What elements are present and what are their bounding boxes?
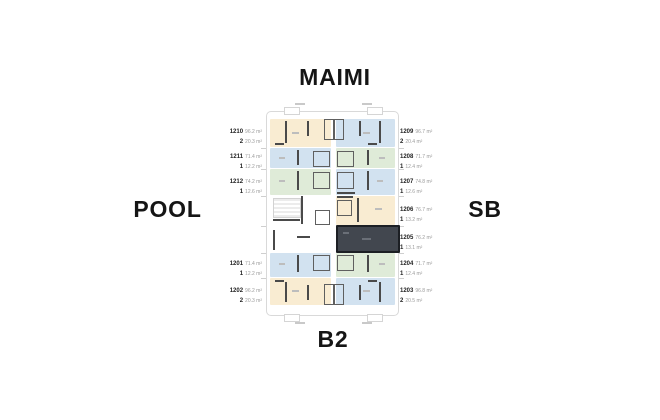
unit-terrace: 20.4 m²	[405, 139, 422, 145]
unit-terrace: 20.3 m²	[245, 298, 262, 304]
room-area-microtext	[379, 263, 385, 265]
unit-terrace: 13.2 m²	[405, 217, 422, 223]
unit-number: 1206	[400, 207, 413, 213]
unit-number: 1204	[400, 261, 413, 267]
wall-segment	[301, 196, 303, 224]
unit-label-1207[interactable]: 120774.8 m² 112.6 m²	[400, 176, 468, 195]
wall-segment	[359, 121, 361, 136]
room-area-microtext	[292, 132, 299, 134]
room-outline	[333, 284, 344, 305]
balcony-tab	[284, 314, 300, 322]
unit-number: 1207	[400, 179, 413, 185]
unit-terrace: 20.5 m²	[405, 298, 422, 304]
unit-area: 76.7 m²	[415, 207, 432, 213]
unit-terrace: 12.6 m²	[405, 189, 422, 195]
unit-number: 1212	[230, 179, 243, 185]
dimension-text-mark	[295, 103, 305, 105]
dimension-tick	[261, 148, 266, 149]
wall-segment	[337, 196, 353, 198]
room-outline	[313, 255, 330, 271]
dimension-text-mark	[295, 322, 305, 324]
unit-label-1206[interactable]: 120676.7 m² 113.2 m²	[400, 204, 468, 223]
label-pool: POOL	[110, 196, 225, 223]
dimension-tick	[261, 196, 266, 197]
unit-number: 1205	[400, 235, 413, 241]
dimension-tick	[261, 226, 266, 227]
wall-segment	[275, 143, 284, 145]
wall-segment	[379, 121, 381, 143]
wall-segment	[367, 171, 369, 190]
unit-terrace: 12.4 m²	[405, 271, 422, 277]
room-area-microtext	[279, 180, 285, 182]
unit-area: 71.4 m²	[245, 154, 262, 160]
wall-segment	[297, 171, 299, 190]
unit-beds: 2	[400, 298, 403, 304]
unit-label-1212[interactable]: 121274.2 m² 112.6 m²	[194, 176, 262, 195]
unit-beds: 1	[400, 164, 403, 170]
unit-number: 1201	[230, 261, 243, 267]
unit-label-1205[interactable]: 120576.2 m² 113.1 m²	[400, 232, 468, 251]
unit-number: 1208	[400, 154, 413, 160]
unit-label-1209[interactable]: 120996.7 m² 220.4 m²	[400, 126, 468, 145]
wall-segment	[367, 255, 369, 272]
unit-beds: 1	[400, 189, 403, 195]
unit-area: 71.7 m²	[415, 154, 432, 160]
floor-plan	[266, 111, 399, 316]
wall-segment	[379, 282, 381, 302]
room-outline	[337, 255, 354, 271]
room-area-microtext	[279, 157, 285, 159]
room-outline	[315, 210, 330, 225]
wall-segment	[297, 255, 299, 272]
dimension-text-mark	[362, 103, 372, 105]
wall-segment	[367, 150, 369, 165]
dimension-tick	[399, 196, 404, 197]
room-outline	[337, 200, 352, 216]
unit-label-1208[interactable]: 120871.7 m² 112.4 m²	[400, 151, 468, 170]
unit-beds: 1	[400, 217, 403, 223]
unit-area: 96.2 m²	[245, 129, 262, 135]
dimension-tick	[399, 148, 404, 149]
room-area-microtext	[343, 232, 349, 234]
unit-label-1201[interactable]: 120171.4 m² 112.2 m²	[194, 258, 262, 277]
room-outline	[313, 172, 330, 189]
unit-number: 1209	[400, 129, 413, 135]
unit-number: 1211	[230, 154, 243, 160]
room-area-microtext	[363, 132, 370, 134]
label-maimi: MAIMI	[270, 64, 400, 91]
wall-segment	[307, 285, 309, 300]
dimension-tick	[399, 278, 404, 279]
unit-number: 1203	[400, 288, 413, 294]
unit-1202[interactable]	[270, 278, 331, 305]
room-area-microtext	[363, 290, 370, 292]
room-area-microtext	[379, 157, 385, 159]
room-area-microtext	[377, 180, 383, 182]
wall-segment	[273, 219, 300, 221]
dimension-tick	[261, 278, 266, 279]
unit-label-1203[interactable]: 120396.8 m² 220.5 m²	[400, 285, 468, 304]
wall-segment	[273, 230, 275, 250]
room-area-microtext	[292, 290, 299, 292]
unit-terrace: 12.4 m²	[405, 164, 422, 170]
balcony-tab	[284, 107, 300, 115]
unit-area: 71.4 m²	[245, 261, 262, 267]
dimension-text-mark	[362, 322, 372, 324]
unit-area: 74.8 m²	[415, 179, 432, 185]
wall-segment	[285, 121, 287, 143]
unit-area: 96.7 m²	[415, 129, 432, 135]
unit-beds: 1	[400, 271, 403, 277]
unit-terrace: 20.3 m²	[245, 139, 262, 145]
room-area-microtext	[362, 238, 371, 240]
unit-area: 76.2 m²	[415, 235, 432, 241]
room-outline	[313, 151, 330, 167]
unit-beds: 1	[240, 271, 243, 277]
dimension-tick	[399, 253, 404, 254]
wall-segment	[285, 282, 287, 302]
dimension-tick	[261, 253, 266, 254]
room-area-microtext	[375, 208, 382, 210]
wall-segment	[357, 198, 359, 222]
balcony-tab	[367, 314, 383, 322]
wall-segment	[359, 285, 361, 300]
unit-terrace: 12.2 m²	[245, 164, 262, 170]
unit-number: 1210	[230, 129, 243, 135]
unit-label-1204[interactable]: 120471.7 m² 112.4 m²	[400, 258, 468, 277]
balcony-tab	[367, 107, 383, 115]
wall-segment	[307, 121, 309, 136]
unit-number: 1202	[230, 288, 243, 294]
wall-segment	[297, 236, 310, 238]
unit-area: 96.2 m²	[245, 288, 262, 294]
unit-beds: 2	[400, 139, 403, 145]
wall-segment	[337, 192, 355, 194]
unit-area: 96.8 m²	[415, 288, 432, 294]
wall-segment	[275, 280, 284, 282]
wall-segment	[297, 150, 299, 165]
unit-beds: 2	[240, 139, 243, 145]
floor-plan-page: MAIMI POOL SB B2 121096.2 m² 220.3 m² 12…	[0, 0, 660, 420]
stairs-hatch	[273, 198, 301, 218]
unit-terrace: 13.1 m²	[405, 245, 422, 251]
unit-area: 74.2 m²	[245, 179, 262, 185]
unit-beds: 2	[240, 298, 243, 304]
unit-label-1211[interactable]: 121171.4 m² 112.2 m²	[194, 151, 262, 170]
room-outline	[333, 119, 344, 140]
room-outline	[337, 172, 354, 189]
label-b2: B2	[303, 326, 363, 353]
unit-label-1202[interactable]: 120296.2 m² 220.3 m²	[194, 285, 262, 304]
unit-beds: 1	[400, 245, 403, 251]
unit-terrace: 12.6 m²	[245, 189, 262, 195]
room-outline	[337, 151, 354, 167]
wall-segment	[368, 280, 377, 282]
wall-segment	[368, 143, 377, 145]
unit-area: 71.7 m²	[415, 261, 432, 267]
unit-beds: 1	[240, 164, 243, 170]
room-area-microtext	[279, 263, 285, 265]
unit-beds: 1	[240, 189, 243, 195]
unit-terrace: 12.2 m²	[245, 271, 262, 277]
unit-label-1210[interactable]: 121096.2 m² 220.3 m²	[194, 126, 262, 145]
